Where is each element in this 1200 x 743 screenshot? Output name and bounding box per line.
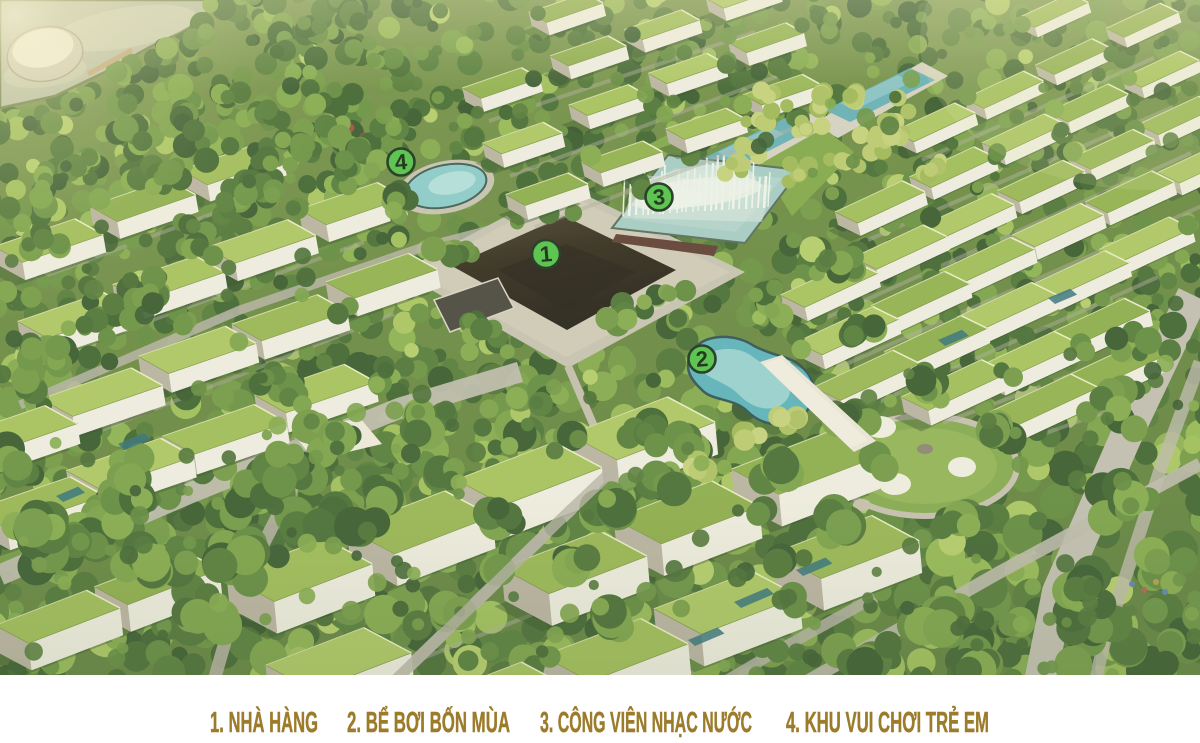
svg-text:1. NHÀ HÀNG: 1. NHÀ HÀNG	[210, 705, 318, 739]
svg-text:4. KHU VUI CHƠI TRẺ EM: 4. KHU VUI CHƠI TRẺ EM	[786, 705, 989, 739]
svg-text:2. BỂ BƠI BỐN MÙA: 2. BỂ BƠI BỐN MÙA	[347, 705, 510, 739]
svg-text:3. CÔNG VIÊN NHẠC NƯỚC: 3. CÔNG VIÊN NHẠC NƯỚC	[540, 705, 752, 739]
